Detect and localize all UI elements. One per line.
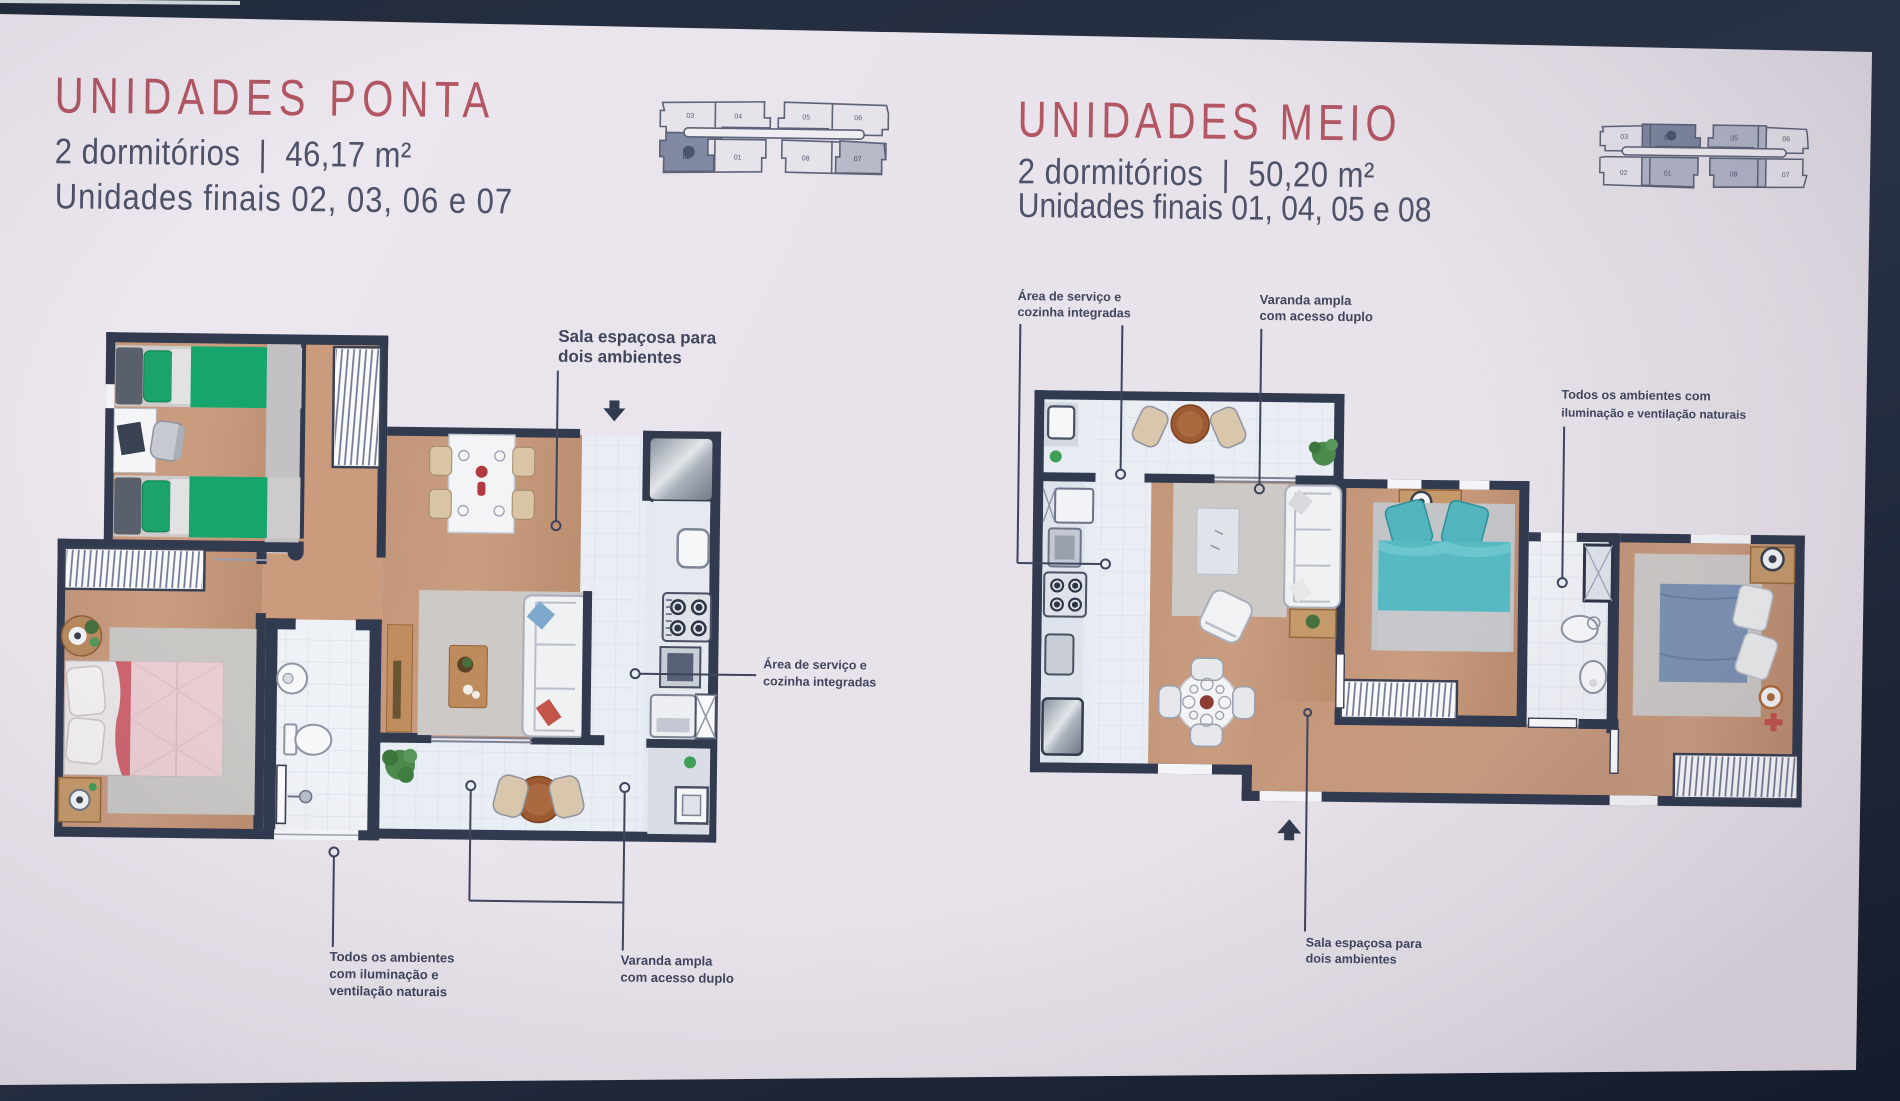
svg-text:dois ambientes: dois ambientes — [1306, 952, 1397, 967]
svg-text:01: 01 — [1664, 170, 1672, 177]
svg-text:Todos os ambientes: Todos os ambientes — [330, 949, 455, 966]
svg-text:Sala espaçosa para: Sala espaçosa para — [1306, 936, 1423, 951]
svg-text:com iluminação e: com iluminação e — [329, 966, 438, 982]
svg-text:com acesso duplo: com acesso duplo — [1259, 308, 1373, 324]
svg-text:dois ambientes: dois ambientes — [558, 347, 682, 368]
svg-text:cozinha integradas: cozinha integradas — [763, 674, 876, 689]
svg-text:Varanda ampla: Varanda ampla — [1260, 292, 1353, 308]
svg-text:06: 06 — [1782, 136, 1790, 143]
svg-text:01: 01 — [734, 154, 742, 161]
svg-text:08: 08 — [802, 155, 810, 162]
svg-text:03: 03 — [1620, 134, 1628, 141]
svg-text:Todos os ambientes com: Todos os ambientes com — [1561, 388, 1710, 404]
svg-text:04: 04 — [734, 113, 742, 120]
svg-text:08: 08 — [1730, 171, 1738, 178]
svg-text:ventilação naturais: ventilação naturais — [329, 983, 447, 999]
svg-text:05: 05 — [802, 114, 810, 121]
svg-text:Varanda ampla: Varanda ampla — [621, 953, 714, 969]
svg-text:05: 05 — [1730, 135, 1738, 142]
svg-text:iluminação e ventilação natura: iluminação e ventilação naturais — [1561, 406, 1746, 422]
svg-text:Área de serviço e: Área de serviço e — [763, 656, 867, 672]
svg-text:02: 02 — [1620, 170, 1628, 177]
svg-text:07: 07 — [1782, 172, 1790, 179]
svg-text:07: 07 — [854, 156, 862, 163]
svg-text:06: 06 — [854, 115, 862, 122]
svg-text:03: 03 — [686, 113, 694, 120]
svg-text:Sala espaçosa para: Sala espaçosa para — [558, 327, 717, 348]
svg-text:cozinha integradas: cozinha integradas — [1017, 305, 1130, 320]
svg-text:Área de serviço e: Área de serviço e — [1018, 288, 1122, 304]
svg-text:com acesso duplo: com acesso duplo — [620, 969, 734, 985]
